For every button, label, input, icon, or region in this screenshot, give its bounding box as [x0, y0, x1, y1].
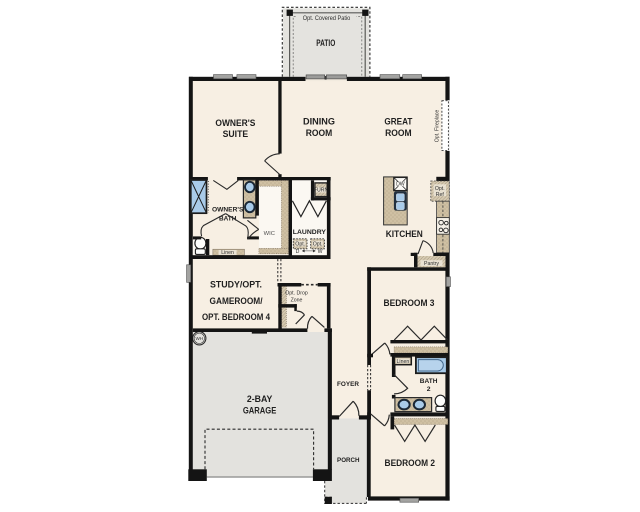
svg-text:Opt.: Opt.	[313, 241, 323, 247]
svg-text:Ref: Ref	[436, 192, 445, 198]
svg-text:PORCH: PORCH	[337, 457, 360, 464]
svg-text:STUDY/OPT.: STUDY/OPT.	[210, 280, 262, 290]
svg-text:GAMEROOM/: GAMEROOM/	[210, 296, 264, 306]
svg-text:D: D	[296, 249, 300, 255]
svg-text:OWNER'S: OWNER'S	[215, 118, 255, 128]
svg-text:GREAT: GREAT	[384, 116, 413, 126]
svg-text:Linen: Linen	[397, 359, 410, 365]
svg-text:Zone: Zone	[291, 298, 303, 304]
svg-text:BEDROOM 2: BEDROOM 2	[385, 458, 436, 468]
svg-text:Pantry: Pantry	[424, 261, 439, 267]
svg-text:OWNER'S: OWNER'S	[212, 206, 244, 213]
svg-text:LAUNDRY: LAUNDRY	[293, 229, 327, 236]
svg-text:BATH: BATH	[420, 378, 438, 385]
svg-text:2-BAY: 2-BAY	[247, 394, 273, 404]
svg-text:FURN: FURN	[314, 188, 329, 194]
svg-text:Opt.: Opt.	[295, 241, 305, 247]
svg-text:Opt.: Opt.	[435, 186, 445, 192]
svg-text:GARAGE: GARAGE	[243, 406, 277, 416]
svg-text:KITCHEN: KITCHEN	[386, 229, 423, 239]
svg-text:Opt. Drop: Opt. Drop	[285, 291, 308, 297]
svg-text:SUITE: SUITE	[223, 129, 249, 139]
svg-text:W: W	[318, 249, 323, 255]
svg-text:WH: WH	[195, 336, 203, 341]
svg-text:PATIO: PATIO	[316, 38, 335, 48]
svg-text:2: 2	[427, 386, 431, 393]
svg-text:DW: DW	[396, 182, 405, 188]
svg-text:FOYER: FOYER	[337, 381, 359, 388]
svg-text:BEDROOM 3: BEDROOM 3	[384, 298, 435, 308]
svg-text:ROOM: ROOM	[306, 128, 333, 138]
svg-text:Opt. Covered Patio: Opt. Covered Patio	[303, 16, 351, 22]
svg-text:WIC: WIC	[264, 231, 275, 237]
svg-text:ROOM: ROOM	[385, 128, 412, 138]
svg-text:Opt. Fireplace: Opt. Fireplace	[435, 110, 441, 143]
svg-text:DINING: DINING	[303, 116, 335, 126]
svg-text:OPT. BEDROOM 4: OPT. BEDROOM 4	[202, 312, 270, 322]
